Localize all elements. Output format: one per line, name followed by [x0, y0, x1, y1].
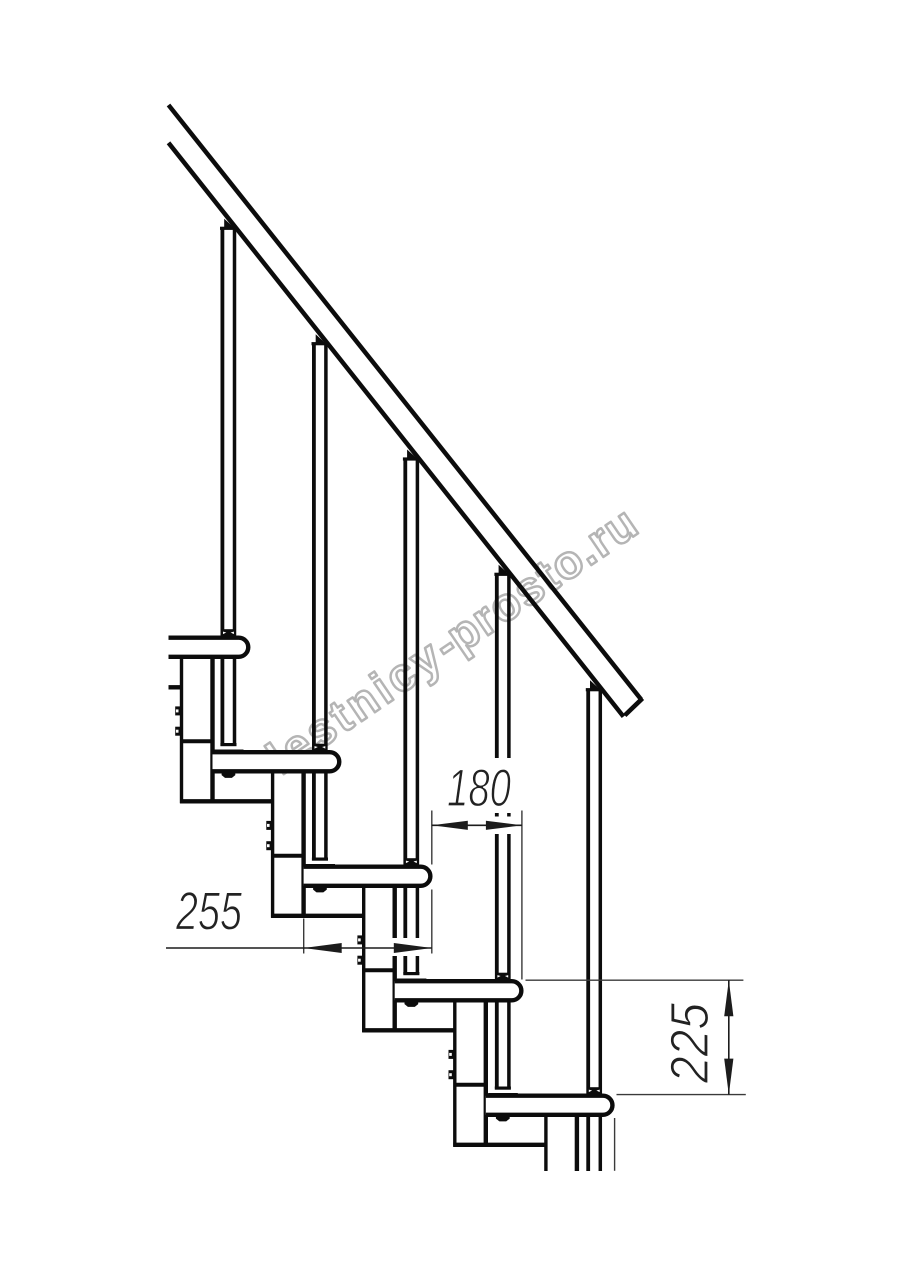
svg-text:225: 225 [660, 1002, 720, 1084]
svg-text:180: 180 [447, 759, 511, 818]
svg-text:255: 255 [175, 882, 242, 942]
